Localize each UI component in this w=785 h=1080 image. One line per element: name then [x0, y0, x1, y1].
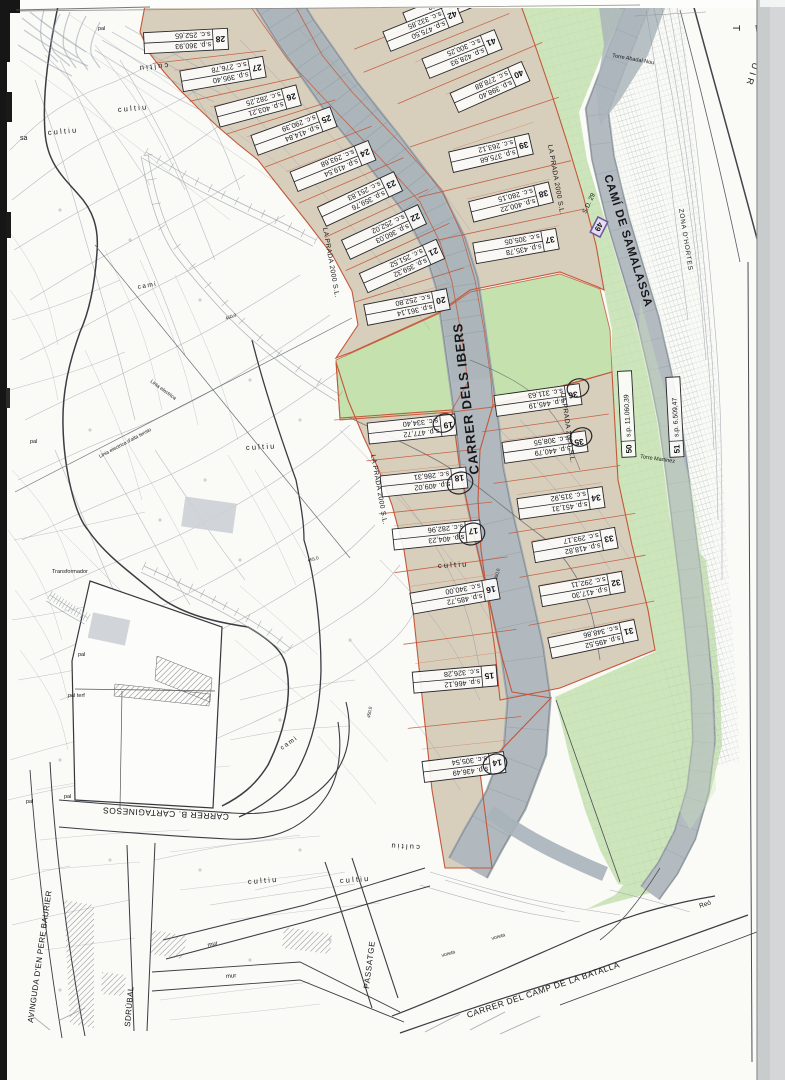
svg-text:T: T [730, 25, 741, 31]
svg-text:37: 37 [544, 234, 555, 246]
svg-text:34: 34 [591, 492, 602, 503]
svg-text:16: 16 [485, 584, 496, 596]
svg-text:32: 32 [610, 577, 621, 589]
svg-text:pal: pal [98, 26, 105, 32]
svg-text:18: 18 [454, 473, 465, 484]
svg-text:pal: pal [78, 652, 85, 658]
svg-text:14: 14 [492, 757, 503, 768]
svg-text:28: 28 [215, 34, 225, 44]
svg-text:mur: mur [226, 973, 237, 980]
svg-text:cultiu: cultiu [438, 559, 469, 570]
svg-text:pal: pal [30, 439, 37, 445]
svg-text:s.c. 252,65: s.c. 252,65 [175, 30, 211, 41]
svg-text:Transformador: Transformador [52, 569, 88, 575]
svg-text:s.p. 360,93: s.p. 360,93 [175, 40, 212, 51]
svg-text:27: 27 [251, 62, 262, 74]
svg-text:cultiu: cultiu [246, 441, 277, 452]
svg-text:cultiu: cultiu [389, 841, 420, 852]
svg-text:sa: sa [20, 135, 28, 142]
svg-text:pal terf: pal terf [68, 693, 85, 699]
svg-text:15: 15 [484, 671, 495, 682]
svg-text:17: 17 [468, 526, 479, 537]
svg-text:50: 50 [624, 444, 633, 454]
svg-text:pal: pal [26, 799, 33, 805]
svg-text:51: 51 [672, 444, 681, 454]
svg-text:pal: pal [64, 794, 71, 800]
svg-text:33: 33 [603, 533, 614, 545]
